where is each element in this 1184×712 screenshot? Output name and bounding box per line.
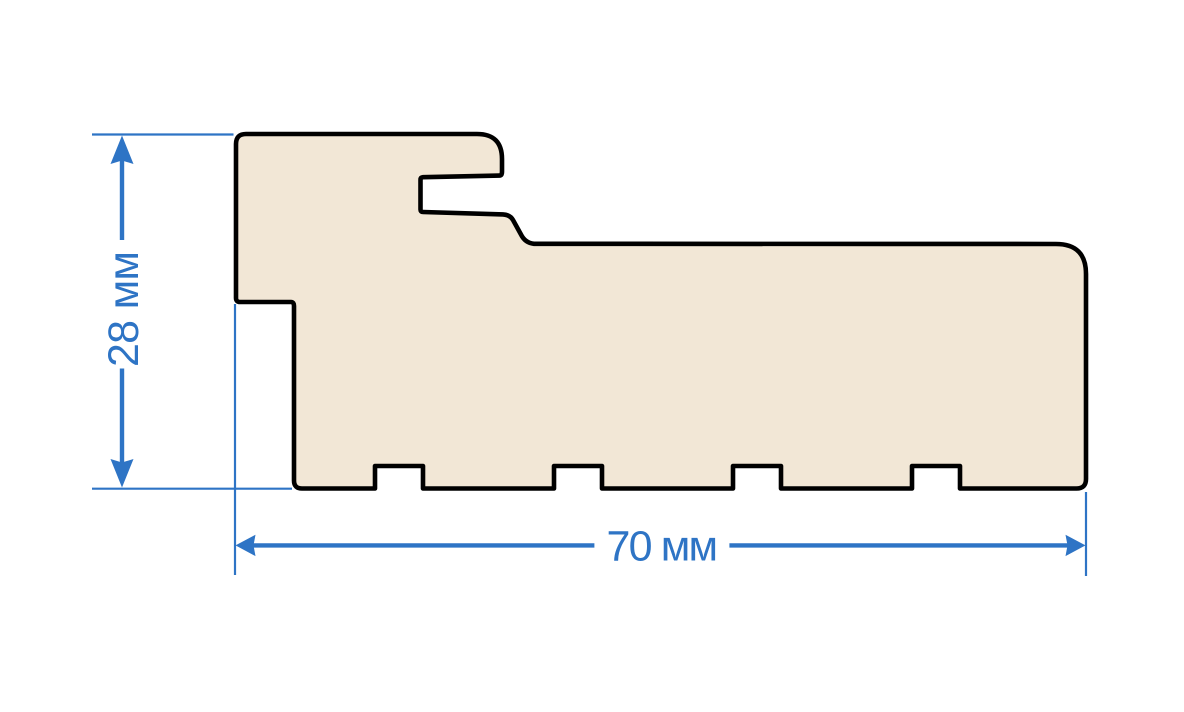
svg-text:70 мм: 70 мм — [607, 522, 719, 570]
svg-text:28 мм: 28 мм — [100, 251, 148, 367]
